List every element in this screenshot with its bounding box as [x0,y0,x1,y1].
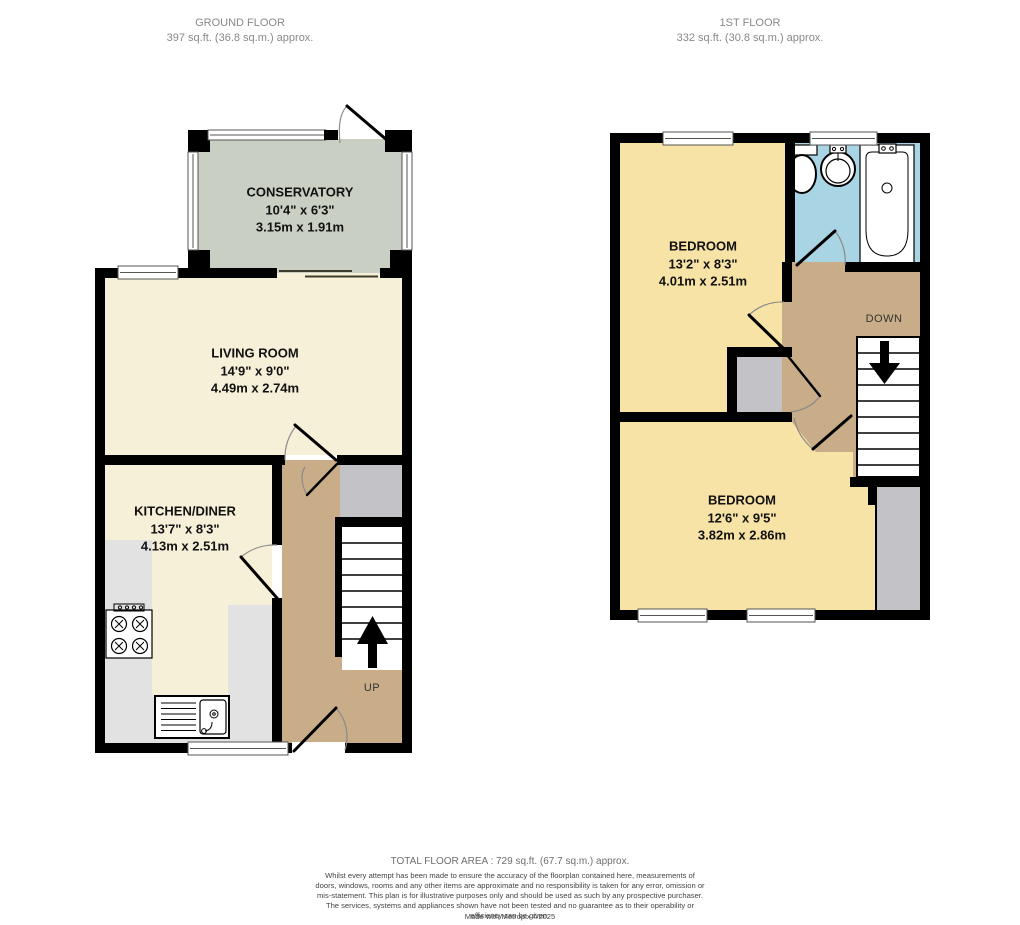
bedroom1-label: BEDROOM 13'2" x 8'3" 4.01m x 2.51m [659,238,747,291]
first-floor-header: 1ST FLOOR 332 sq.ft. (30.8 sq.m.) approx… [677,16,824,46]
stairs-down-arrow [880,341,889,365]
conservatory-door-arc [339,106,347,143]
floorplan-drawing [0,0,1020,925]
room-name: KITCHEN/DINER [134,503,236,521]
room-dims-metric: 4.13m x 2.51m [134,538,236,556]
room-dims-imperial: 13'7" x 8'3" [134,520,236,538]
room-dims-imperial: 14'9" x 9'0" [211,362,299,380]
credit-text: Made with Metropix ©2025 [465,912,555,921]
room-dims-imperial: 13'2" x 8'3" [659,255,747,273]
room-dims-metric: 3.15m x 1.91m [247,219,354,237]
room-dims-imperial: 12'6" x 9'5" [698,509,786,527]
hob-icon [106,604,152,658]
total-floor-area: TOTAL FLOOR AREA : 729 sq.ft. (67.7 sq.m… [391,856,630,867]
room-name: BEDROOM [659,238,747,256]
room-dims-metric: 4.01m x 2.51m [659,273,747,291]
ground-floor-title: GROUND FLOOR [167,16,314,31]
bedroom2-label: BEDROOM 12'6" x 9'5" 3.82m x 2.86m [698,492,786,545]
first-floor-plan [610,132,930,622]
stairs-up-label: UP [364,682,380,694]
bathtub-icon [860,144,914,264]
ground-floor-area: 397 sq.ft. (36.8 sq.m.) approx. [167,31,314,46]
room-dims-imperial: 10'4" x 6'3" [247,201,354,219]
living-room-label: LIVING ROOM 14'9" x 9'0" 4.49m x 2.74m [211,345,299,398]
stairs-down [857,337,920,477]
room-name: LIVING ROOM [211,345,299,363]
room-name: CONSERVATORY [247,184,354,202]
stairs-down-label: DOWN [866,313,903,325]
conservatory-door-leaf [347,106,388,141]
room-name: BEDROOM [698,492,786,510]
bedroom1-closet [737,357,782,412]
room-dims-metric: 3.82m x 2.86m [698,527,786,545]
room-dims-metric: 4.49m x 2.74m [211,380,299,398]
understairs-cupboard [340,465,402,517]
ground-floor-header: GROUND FLOOR 397 sq.ft. (36.8 sq.m.) app… [167,16,314,46]
kitchen-diner-label: KITCHEN/DINER 13'7" x 8'3" 4.13m x 2.51m [134,503,236,556]
floorplan-page: GROUND FLOOR 397 sq.ft. (36.8 sq.m.) app… [0,0,1020,925]
stairs-up [342,527,402,670]
first-floor-cupboard [877,487,920,610]
patio-slider [277,268,380,278]
kitchen-sink-icon [155,696,229,738]
first-floor-area: 332 sq.ft. (30.8 sq.m.) approx. [677,31,824,46]
first-floor-title: 1ST FLOOR [677,16,824,31]
conservatory-label: CONSERVATORY 10'4" x 6'3" 3.15m x 1.91m [247,184,354,237]
